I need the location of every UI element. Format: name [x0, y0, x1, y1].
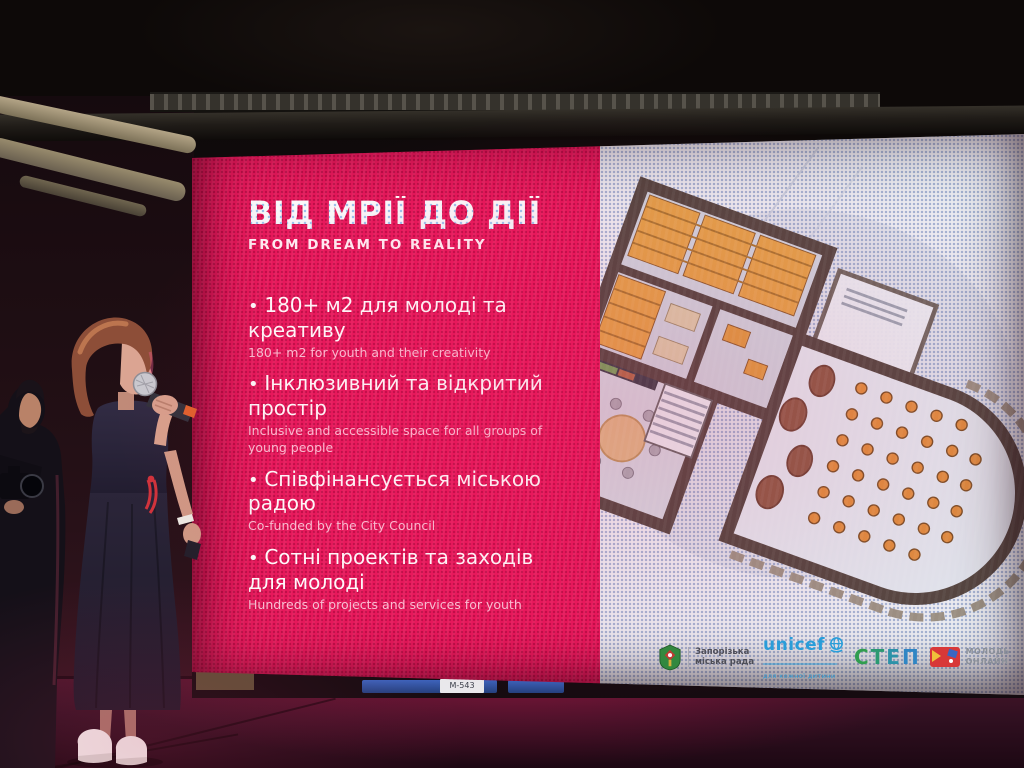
slide-subtitle: FROM DREAM TO REALITY — [248, 237, 578, 253]
bullet-item: 180+ м2 для молоді та креативу 180+ m2 f… — [248, 293, 578, 361]
step-letter: Т — [871, 645, 887, 669]
step-letter: С — [854, 645, 871, 669]
logo-youth-online: МОЛОДЬ ОНЛАЙН — [930, 647, 1010, 667]
logo-youth-line1: МОЛОДЬ — [966, 647, 1010, 657]
logo-unicef: unicef для кожної дитини — [763, 635, 845, 680]
logo-step: С Т Е П — [854, 645, 921, 669]
led-screen: ВІД МРІЇ ДО ДІЇ FROM DREAM TO REALITY 18… — [192, 134, 1024, 695]
bullet-text-en: 180+ m2 for youth and their creativity — [248, 344, 578, 362]
bullet-text-en: Co-funded by the City Council — [248, 517, 578, 535]
bullet-item: Сотні проектів та заходів для молоді Hun… — [248, 545, 578, 613]
bullet-text-en: Inclusive and accessible space for all g… — [248, 422, 578, 457]
floor-plan-rendering — [600, 134, 1024, 695]
bullet-text-uk: Інклюзивний та відкритий простір — [248, 371, 578, 420]
unicef-wordmark: unicef — [763, 635, 825, 655]
logos-row: Запорізька міська рада unicef — [658, 632, 1010, 682]
bullet-text-uk: 180+ м2 для молоді та креативу — [248, 293, 578, 342]
event-stage-photo: ВІД МРІЇ ДО ДІЇ FROM DREAM TO REALITY 18… — [0, 0, 1024, 768]
slide-pink-panel: ВІД МРІЇ ДО ДІЇ FROM DREAM TO REALITY 18… — [192, 134, 600, 695]
logo-city-line2: міська рада — [695, 657, 754, 667]
unicef-globe-icon — [828, 636, 845, 653]
bullet-item: Співфінансується міською радою Co-funded… — [248, 467, 578, 535]
logo-city-council: Запорізька міська рада — [658, 643, 754, 671]
bullet-text-en: Hundreds of projects and services for yo… — [248, 596, 578, 614]
bullet-item: Інклюзивний та відкритий простір Inclusi… — [248, 371, 578, 457]
slide-title: ВІД МРІЇ ДО ДІЇ — [248, 196, 578, 231]
logo-youth-line2: ОНЛАЙН — [966, 657, 1010, 667]
youth-online-flag-icon — [930, 647, 960, 667]
slide-white-panel: Запорізька міська рада unicef — [600, 134, 1024, 695]
bullet-text-uk: Співфінансується міською радою — [248, 467, 578, 516]
step-letter: П — [902, 645, 921, 669]
unicef-tagline: для кожної дитини — [763, 672, 836, 680]
bullet-text-uk: Сотні проектів та заходів для молоді — [248, 545, 578, 594]
logo-city-line1: Запорізька — [695, 647, 754, 657]
city-council-emblem-icon — [658, 643, 682, 671]
slide-bullets: 180+ м2 для молоді та креативу 180+ m2 f… — [248, 293, 578, 613]
equipment-label: M-543 — [440, 679, 484, 693]
presenter-woman-with-microphone — [60, 312, 210, 768]
step-letter: Е — [886, 645, 902, 669]
